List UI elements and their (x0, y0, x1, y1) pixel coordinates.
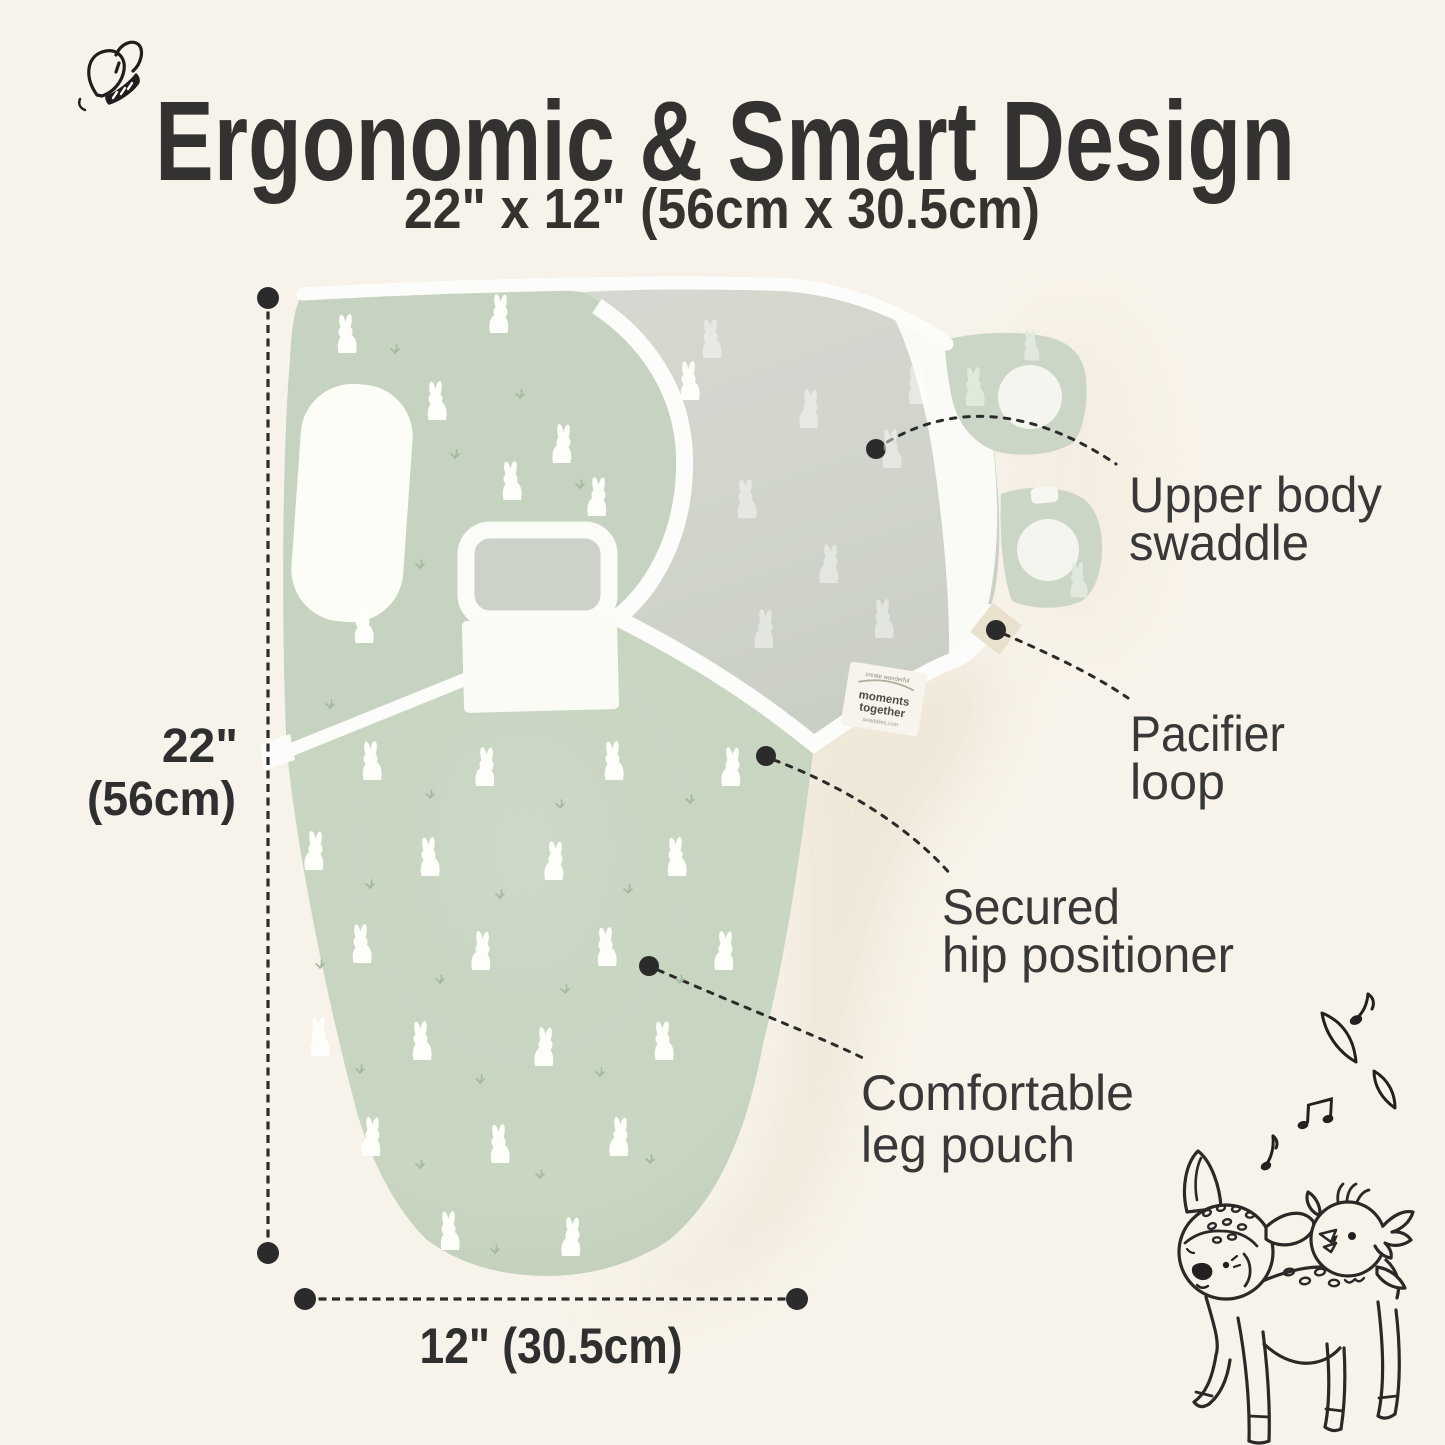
svg-text:leg pouch: leg pouch (861, 1117, 1075, 1173)
svg-text:loop: loop (1130, 754, 1225, 810)
svg-text:Comfortable: Comfortable (861, 1065, 1134, 1121)
svg-text:(56cm): (56cm) (87, 773, 236, 826)
svg-text:12" (30.5cm): 12" (30.5cm) (420, 1318, 683, 1374)
svg-text:hip positioner: hip positioner (942, 927, 1234, 983)
svg-text:22" x 12" (56cm x 30.5cm): 22" x 12" (56cm x 30.5cm) (404, 177, 1040, 241)
svg-text:swaddle: swaddle (1129, 515, 1309, 571)
svg-text:22": 22" (162, 720, 238, 773)
